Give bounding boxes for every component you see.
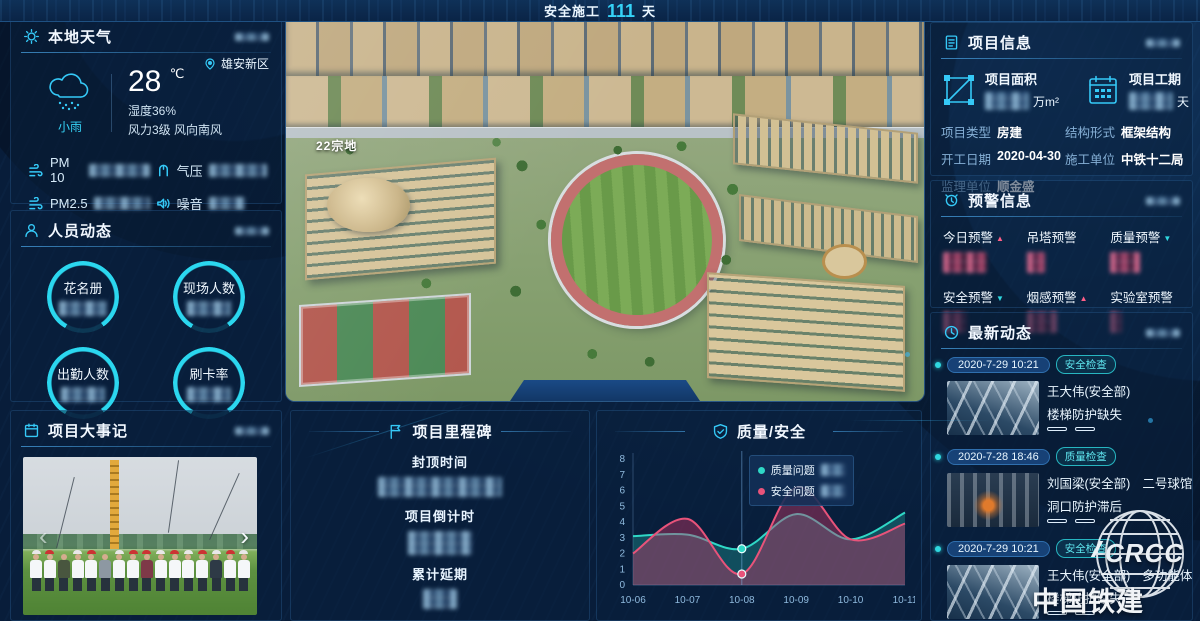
calendar-note-icon xyxy=(23,422,40,439)
ring-value-redacted xyxy=(61,387,105,402)
svg-text:8: 8 xyxy=(619,454,625,465)
warning-label: 安全预警 xyxy=(943,287,993,306)
person-figure xyxy=(44,550,56,591)
person-figure xyxy=(113,550,125,591)
weather-metrics: PM 10 气压 PM2.5 噪音 xyxy=(29,155,271,213)
alarm-bell-icon xyxy=(943,192,960,209)
duration-label: 项目工期 xyxy=(1129,69,1189,88)
redacted-text xyxy=(1146,329,1180,337)
metric-pressure: 气压 xyxy=(156,155,271,185)
area-label: 项目面积 xyxy=(985,69,1059,88)
weather-condition: 小雨 xyxy=(33,71,107,135)
milestone-label: 封顶时间 xyxy=(412,452,468,471)
panel-project-info: 项目信息 项目面积 万m² 项目工期 xyxy=(930,22,1193,176)
tooltip-row: 安全问题 xyxy=(758,483,845,499)
svg-text:10-08: 10-08 xyxy=(729,595,755,606)
person-figure xyxy=(127,550,139,591)
svg-text:10-10: 10-10 xyxy=(838,595,864,606)
field-project-type: 项目类型房建 xyxy=(941,122,1059,141)
personnel-ring: 现场人数 xyxy=(171,259,247,335)
ring-label: 花名册 xyxy=(63,278,102,297)
svg-text:2: 2 xyxy=(619,549,625,560)
sun-icon xyxy=(23,28,40,45)
events-panel-head: 项目大事记 xyxy=(11,411,281,447)
svg-text:3: 3 xyxy=(619,533,625,544)
milestone-label: 项目倒计时 xyxy=(405,506,475,525)
site-render xyxy=(286,9,924,401)
panel-milestone: 项目里程碑 封顶时间 项目倒计时 累计延期 xyxy=(290,410,590,621)
feed-type-badge: 安全检查 xyxy=(1056,355,1116,374)
temperature-value: 28 xyxy=(128,65,161,98)
duration-value-redacted xyxy=(1129,92,1173,110)
milestone-item: 封顶时间 xyxy=(378,452,502,497)
field-structure: 结构形式框架结构 xyxy=(1065,122,1192,141)
visual-tab-bar xyxy=(510,380,700,401)
weather-main: 小雨 28 ℃ 湿度36% 风力3级 风向南风 xyxy=(33,67,281,139)
clock-icon xyxy=(943,324,960,341)
panel-quality-safety: 质量/安全 01234567810-0610-0710-0810-0910-10… xyxy=(596,410,922,621)
warning-label: 今日预警 xyxy=(943,227,993,246)
svg-text:0: 0 xyxy=(619,580,625,591)
metric-value-redacted xyxy=(209,164,267,177)
person-figure xyxy=(224,550,236,591)
milestone-value-redacted xyxy=(423,589,457,609)
timeline-dot-icon xyxy=(935,454,941,460)
svg-text:7: 7 xyxy=(619,470,625,481)
weather-panel-head: 本地天气 xyxy=(11,17,281,53)
ring-value-redacted xyxy=(187,387,231,402)
svg-text:10-07: 10-07 xyxy=(675,595,701,606)
crcc-logo: CRCC 中国铁建 xyxy=(1032,502,1200,621)
ring-value-redacted xyxy=(59,301,107,316)
panel-personnel: 人员动态 花名册 现场人数 xyxy=(10,210,282,402)
feed-person: 王大伟(安全部) xyxy=(1047,381,1130,400)
warning-item: 吊塔预警 xyxy=(1027,227,1105,273)
person-figure xyxy=(210,550,222,591)
svg-text:10-09: 10-09 xyxy=(783,595,809,606)
trend-icon xyxy=(996,230,1004,244)
area-unit: 万m² xyxy=(1033,93,1059,110)
site-parcel-label: 22宗地 xyxy=(316,137,357,154)
feed-status-tag xyxy=(1075,427,1095,431)
warning-value-redacted xyxy=(1027,252,1045,273)
warning-item: 今日预警 xyxy=(943,227,1021,273)
events-panel-title: 项目大事记 xyxy=(48,420,128,441)
feed-photo xyxy=(947,473,1039,527)
pole xyxy=(168,460,179,532)
svg-text:10-11: 10-11 xyxy=(893,595,915,606)
milestone-item: 累计延期 xyxy=(412,564,468,609)
stat-duration: 项目工期 天 xyxy=(1085,69,1189,110)
metric-value-redacted xyxy=(94,197,150,210)
milestone-label: 累计延期 xyxy=(412,564,468,583)
carousel-prev-icon[interactable]: ‹ xyxy=(39,523,48,549)
chart-tooltip: 质量问题安全问题 xyxy=(749,455,854,506)
feed-photo xyxy=(947,565,1039,619)
field-start-date: 开工日期2020-04-30 xyxy=(941,149,1059,168)
tooltip-row: 质量问题 xyxy=(758,462,845,478)
redacted-text xyxy=(235,427,269,435)
redacted-text xyxy=(1146,39,1180,47)
safety-days-label: 安全施工 xyxy=(544,1,600,20)
safety-days-value: 111 xyxy=(607,2,635,20)
quality-panel-title: 质量/安全 xyxy=(737,421,806,442)
feed-location: 二号球馆 xyxy=(1142,473,1192,492)
feed-type-badge: 质量检查 xyxy=(1056,447,1116,466)
milestone-panel-title: 项目里程碑 xyxy=(412,421,492,442)
area-value-redacted xyxy=(985,92,1029,110)
svg-text:5: 5 xyxy=(619,501,625,512)
divider xyxy=(111,74,112,132)
redacted-text xyxy=(1146,197,1180,205)
person-figure xyxy=(85,550,97,591)
svg-text:6: 6 xyxy=(619,486,625,497)
svg-text:1: 1 xyxy=(619,564,625,575)
warnings-panel-head: 预警信息 xyxy=(931,181,1192,217)
redacted-text xyxy=(235,33,269,41)
feed-date-badge: 2020-7-28 18:46 xyxy=(947,449,1050,465)
timeline-dot-icon xyxy=(935,546,941,552)
metric-pm10: PM 10 xyxy=(29,155,150,185)
metric-label: 气压 xyxy=(177,161,203,180)
trend-icon xyxy=(996,290,1004,304)
humidity-label: 湿度36% xyxy=(128,102,222,121)
events-photo[interactable]: ‹ › xyxy=(23,457,257,615)
chart-wrap: 01234567810-0610-0710-0810-0910-1010-11 … xyxy=(605,445,915,617)
stat-area: 项目面积 万m² xyxy=(941,69,1059,110)
panel-warnings: 预警信息 今日预警 吊塔预警 质量预警 安全预警 烟感预警 xyxy=(930,180,1193,308)
noise-icon xyxy=(156,197,171,210)
pm-icon xyxy=(29,197,44,210)
pm-icon xyxy=(29,164,44,177)
person-figure xyxy=(72,550,84,591)
panel-events: 项目大事记 ‹ › xyxy=(10,410,282,621)
feed-panel-head: 最新动态 xyxy=(931,313,1192,349)
dot-decor xyxy=(905,352,910,357)
ring-label: 刷卡率 xyxy=(189,364,228,383)
timeline-dot-icon xyxy=(935,362,941,368)
warning-label: 烟感预警 xyxy=(1027,287,1077,306)
location-label: 雄安新区 xyxy=(221,55,269,72)
trend-icon xyxy=(1080,290,1088,304)
crcc-abbr: CRCC xyxy=(1105,538,1184,569)
milestone-value-redacted xyxy=(408,531,472,555)
carousel-next-icon[interactable]: › xyxy=(240,523,249,549)
duration-unit: 天 xyxy=(1177,93,1189,110)
person-figure xyxy=(196,550,208,591)
field-contractor: 施工单位中铁十二局 xyxy=(1065,149,1192,168)
svg-text:4: 4 xyxy=(619,517,625,528)
person-figure xyxy=(99,554,111,591)
location-badge: 雄安新区 xyxy=(204,55,269,72)
safety-days-unit: 天 xyxy=(642,1,656,20)
svg-text:10-06: 10-06 xyxy=(620,595,646,606)
weather-panel-title: 本地天气 xyxy=(48,26,112,47)
milestone-panel-head: 项目里程碑 xyxy=(291,411,589,446)
warning-label: 质量预警 xyxy=(1110,227,1160,246)
ring-value-redacted xyxy=(187,301,231,316)
warning-label: 实验室预警 xyxy=(1110,287,1173,306)
personnel-panel-head: 人员动态 xyxy=(11,211,281,247)
person-figure xyxy=(169,550,181,591)
document-icon xyxy=(943,34,960,51)
pin-icon xyxy=(204,58,216,70)
person-figure xyxy=(30,550,42,591)
weather-condition-label: 小雨 xyxy=(33,118,107,135)
milestone-list: 封顶时间 项目倒计时 累计延期 xyxy=(291,452,589,618)
feed-issue: 楼梯防护缺失 xyxy=(1047,404,1142,423)
warning-value-redacted xyxy=(943,252,987,273)
personnel-panel-title: 人员动态 xyxy=(48,220,112,241)
person-icon xyxy=(23,222,40,239)
site-3d-view[interactable]: 22宗地 xyxy=(285,8,925,402)
feed-photo xyxy=(947,381,1039,435)
trend-icon xyxy=(1163,230,1171,244)
ring-label: 出勤人数 xyxy=(57,364,109,383)
crcc-name: 中国铁建 xyxy=(1032,580,1144,619)
calendar-icon xyxy=(1085,72,1121,108)
milestone-item: 项目倒计时 xyxy=(405,506,475,555)
feed-date-badge: 2020-7-29 10:21 xyxy=(947,357,1050,373)
circuit-decor xyxy=(850,420,990,421)
info-panel-title: 项目信息 xyxy=(968,32,1032,53)
person-figure xyxy=(141,550,153,591)
warning-value-redacted xyxy=(1110,252,1140,273)
metric-label: PM2.5 xyxy=(50,196,88,211)
events-photo-crowd xyxy=(30,531,250,591)
feed-person: 刘国梁(安全部) xyxy=(1047,473,1130,492)
dashboard-stage: 安全施工 111 天 本地天气 雄安新区 小雨 xyxy=(0,0,1200,621)
shield-check-icon xyxy=(712,423,729,440)
person-figure xyxy=(238,550,250,591)
metric-label: PM 10 xyxy=(50,155,83,185)
wind-label: 风力3级 风向南风 xyxy=(128,121,222,140)
feed-entry[interactable]: 2020-7-29 10:21 安全检查 王大伟(安全部) 楼梯防护缺失 xyxy=(939,355,1184,435)
milestone-value-redacted xyxy=(378,477,502,497)
person-figure xyxy=(155,550,167,591)
person-figure xyxy=(182,550,194,591)
personnel-ring: 花名册 xyxy=(45,259,121,335)
metric-value-redacted xyxy=(89,164,150,177)
dot-decor xyxy=(1148,418,1153,423)
quality-panel-head: 质量/安全 xyxy=(597,411,921,446)
top-header: 安全施工 111 天 xyxy=(0,0,1200,22)
personnel-rings: 花名册 现场人数 出勤人数 xyxy=(11,247,281,421)
ring-label: 现场人数 xyxy=(183,278,235,297)
warnings-panel-title: 预警信息 xyxy=(968,190,1032,211)
info-stats: 项目面积 万m² 项目工期 天 xyxy=(931,59,1192,110)
pole xyxy=(209,473,239,540)
warning-label: 吊塔预警 xyxy=(1027,227,1077,246)
temperature-unit: ℃ xyxy=(170,66,185,81)
feed-tags xyxy=(1047,427,1142,431)
rain-cloud-icon xyxy=(44,71,96,111)
warning-item: 质量预警 xyxy=(1110,227,1188,273)
pressure-icon xyxy=(156,164,171,177)
person-figure xyxy=(58,554,70,591)
redacted-text xyxy=(235,227,269,235)
feed-panel-title: 最新动态 xyxy=(968,322,1032,343)
panel-weather: 本地天气 雄安新区 小雨 28 ℃ 湿度36% 风力3级 风向南风 xyxy=(10,16,282,204)
info-panel-head: 项目信息 xyxy=(931,23,1192,59)
metric-value-redacted xyxy=(209,197,245,210)
feed-status-tag xyxy=(1047,427,1067,431)
area-icon xyxy=(941,72,977,108)
